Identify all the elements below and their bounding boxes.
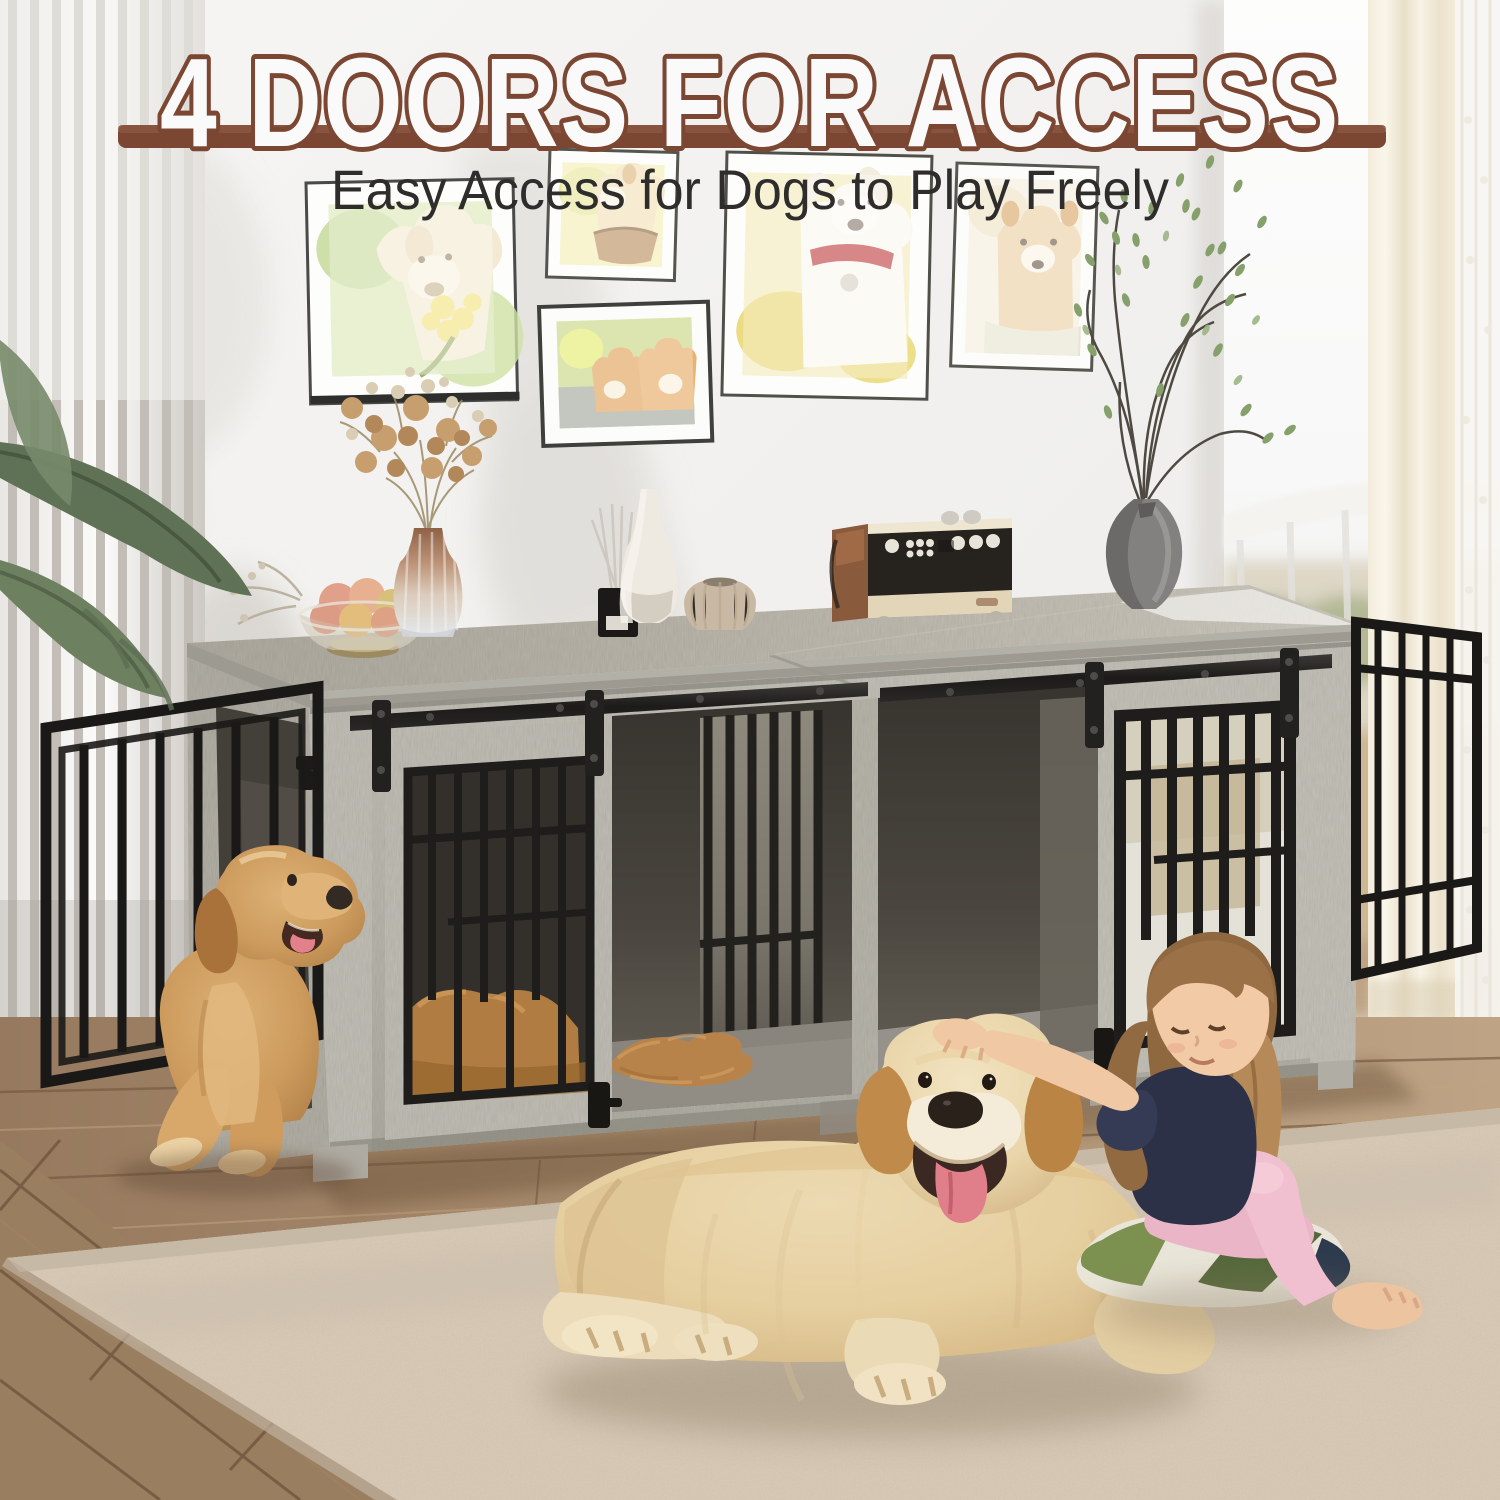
svg-text:4 DOORS FOR ACCESS: 4 DOORS FOR ACCESS [160,32,1340,173]
svg-text:Easy Access for Dogs to Play F: Easy Access for Dogs to Play Freely [331,158,1169,221]
